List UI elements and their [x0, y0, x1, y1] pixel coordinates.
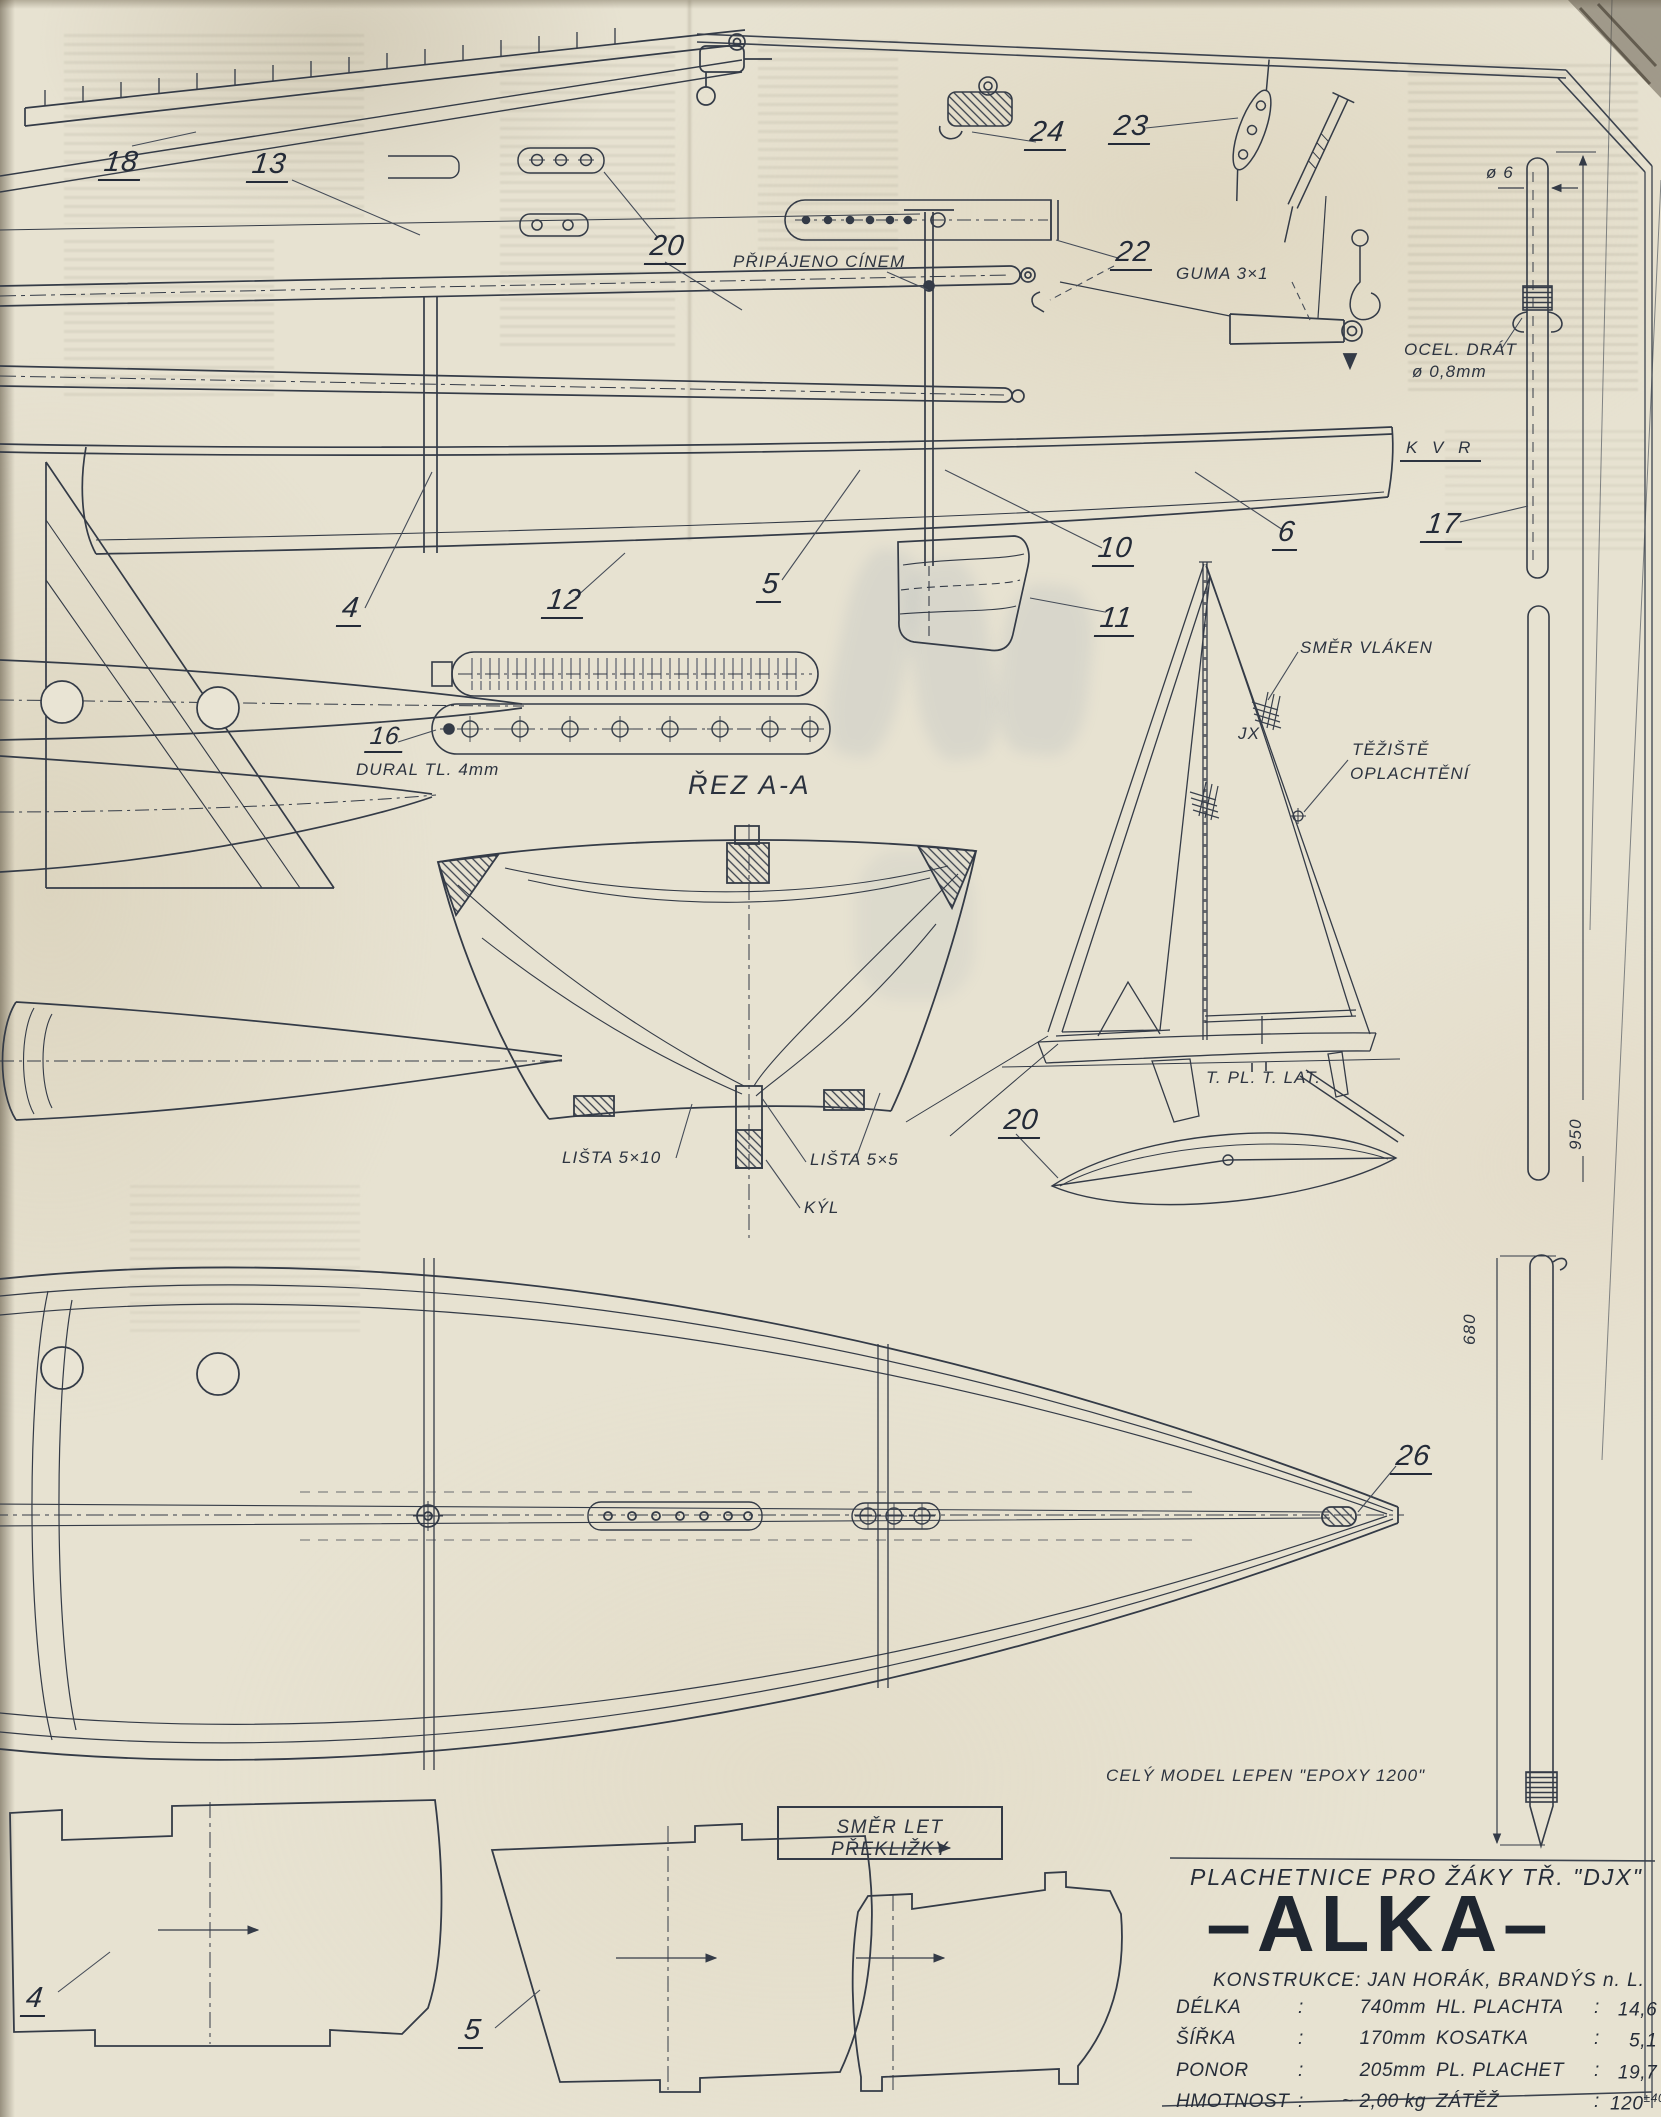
part-number-13: 13 — [246, 148, 293, 183]
part-number-26: 26 — [1390, 1440, 1437, 1475]
spec-colon: : — [1594, 1997, 1610, 2021]
part-number-6: 6 — [1272, 516, 1301, 551]
hull-side-view-drawing — [0, 296, 1393, 554]
label-t-pl: T. PL. — [1206, 1068, 1256, 1088]
spec-value: 170mm — [1314, 2028, 1426, 2052]
spec-key: DÉLKA — [1176, 1997, 1298, 2021]
label-jx-class: JX — [1238, 724, 1260, 744]
hull-plan-view-drawing — [0, 1258, 1404, 1770]
label-t-lat: T. LAT. — [1262, 1068, 1321, 1088]
label-keel: KÝL — [804, 1198, 839, 1218]
plywood-grain-direction-box: SMĚR LET PŘEKLIŽKY — [777, 1806, 1003, 1860]
mast-spar-pieces-drawing — [1497, 152, 1596, 1846]
part-number-23: 23 — [1108, 110, 1155, 145]
dimension-680: 680 — [1460, 1313, 1480, 1345]
spec-colon: : — [1298, 2028, 1314, 2052]
label-glued-with-epoxy: CELÝ MODEL LEPEN "EPOXY 1200" — [1106, 1766, 1425, 1786]
technical-drawing-canvas — [0, 0, 1661, 2117]
spec-value: 120±40dkg — [1610, 2091, 1661, 2115]
part-number-20-mid: 20 — [998, 1104, 1045, 1139]
label-sail-cg-line1: TĚŽIŠTĚ — [1352, 740, 1430, 760]
label-strip-5x10: LIŠTA 5×10 — [562, 1148, 661, 1168]
part-number-11: 11 — [1094, 602, 1138, 637]
spec-key: HL. PLACHTA — [1436, 1997, 1594, 2021]
part-number-20: 20 — [644, 230, 691, 265]
spec-key: HMOTNOST — [1176, 2091, 1298, 2115]
part-number-16: 16 — [364, 722, 406, 753]
spec-value: 14,6 dm² — [1610, 1997, 1661, 2021]
deck-plan-drawing — [1052, 1070, 1404, 1205]
spec-value: 205mm — [1314, 2060, 1426, 2084]
label-diameter-6: ø 6 — [1486, 163, 1514, 183]
spec-colon: : — [1594, 2060, 1610, 2084]
spec-colon: : — [1594, 2091, 1610, 2115]
label-rubber-3x1: GUMA 3×1 — [1176, 264, 1269, 284]
part-number-17: 17 — [1420, 508, 1467, 543]
part-number-18: 18 — [98, 146, 145, 181]
spec-colon: : — [1298, 2091, 1314, 2115]
spec-key: KOSATKA — [1436, 2028, 1594, 2052]
dural-plate-drawings — [432, 652, 830, 754]
scanned-model-plan-page: { "colors": { "paper": "#e7e2d1", "ink":… — [0, 0, 1661, 2117]
dimension-950: 950 — [1566, 1118, 1586, 1150]
spec-table: DÉLKA:740mmHL. PLACHTA:14,6 dm² ŠÍŘKA:17… — [1176, 1997, 1661, 2115]
label-steel-wire-diameter: ø 0,8mm — [1412, 362, 1487, 382]
plan-title: –ALKA– — [1200, 1884, 1560, 1964]
spec-colon: : — [1298, 2060, 1314, 2084]
label-kvr-waterline: K V R — [1400, 438, 1481, 462]
spec-key: PL. PLACHET — [1436, 2060, 1594, 2084]
spec-value: 740mm — [1314, 1997, 1426, 2021]
spec-value: 5,1 dm² — [1610, 2028, 1661, 2052]
label-dural-thickness: DURAL TL. 4mm — [356, 760, 499, 780]
spec-key: PONOR — [1176, 2060, 1298, 2084]
part-number-4: 4 — [336, 592, 365, 627]
part-number-5-frame: 5 — [458, 2014, 487, 2049]
bowsie-fitting-drawing — [518, 148, 604, 236]
part-number-22: 22 — [1110, 236, 1157, 271]
part-number-10: 10 — [1092, 532, 1139, 567]
label-soldered-with-tin: PŘIPÁJENO CÍNEM — [733, 252, 905, 272]
part-number-5: 5 — [756, 568, 785, 603]
plan-designer: KONSTRUKCE: JAN HORÁK, BRANDÝS n. L. — [1213, 1970, 1645, 1992]
part-number-4-frame: 4 — [20, 1982, 49, 2017]
label-grain-direction: SMĚR VLÁKEN — [1300, 638, 1433, 658]
plywood-grain-direction-label: SMĚR LET PŘEKLIŽKY — [831, 1817, 949, 1860]
spec-colon: : — [1594, 2028, 1610, 2052]
label-section-a-a: ŘEZ A-A — [688, 770, 811, 801]
spec-key: ŠÍŘKA — [1176, 2028, 1298, 2052]
spec-value: ~ 2,00 kg — [1314, 2091, 1426, 2115]
part-number-24: 24 — [1024, 116, 1071, 151]
label-strip-5x5: LIŠTA 5×5 — [810, 1150, 899, 1170]
label-sail-cg-line2: OPLACHTĚNÍ — [1350, 764, 1470, 784]
spec-value: 19,7 dm² — [1610, 2060, 1661, 2084]
label-steel-wire: OCEL. DRÁT — [1404, 340, 1517, 360]
part-number-12: 12 — [541, 584, 588, 619]
spec-key: ZÁTĚŽ — [1436, 2091, 1594, 2115]
rudder-drawing — [898, 536, 1029, 650]
keel-fin-and-plank-templates — [0, 462, 566, 1120]
section-a-a-drawing — [438, 824, 976, 1238]
spec-colon: : — [1298, 1997, 1314, 2021]
